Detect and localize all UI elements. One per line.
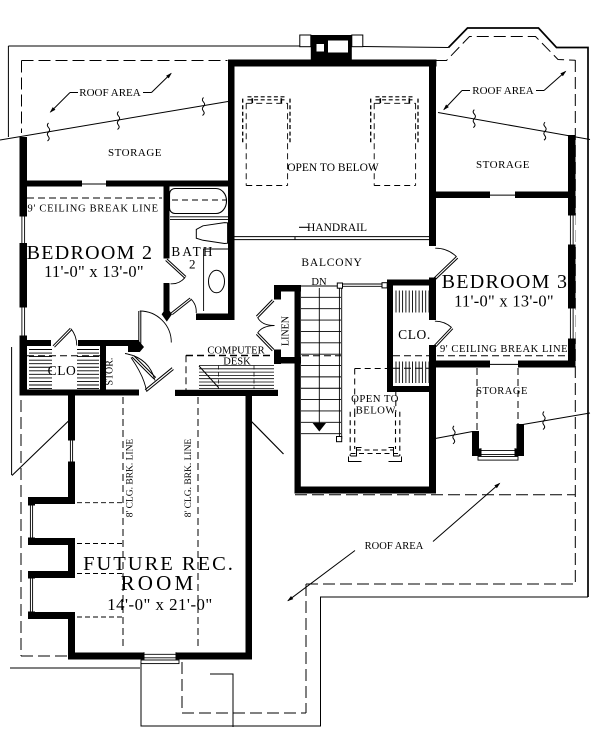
svg-text:STOR.: STOR. bbox=[105, 358, 116, 386]
svg-text:11'-0" x 13'-0": 11'-0" x 13'-0" bbox=[454, 292, 554, 311]
svg-text:STORAGE: STORAGE bbox=[108, 147, 162, 159]
svg-text:ROOF AREA: ROOF AREA bbox=[79, 87, 140, 99]
svg-text:CLO.: CLO. bbox=[398, 327, 431, 342]
svg-text:OPEN TO: OPEN TO bbox=[351, 393, 399, 405]
svg-text:CLO.: CLO. bbox=[48, 363, 81, 378]
svg-text:9' CEILING BREAK LINE: 9' CEILING BREAK LINE bbox=[28, 204, 159, 215]
svg-text:BALCONY: BALCONY bbox=[301, 257, 362, 269]
svg-text:ROOF AREA: ROOF AREA bbox=[472, 85, 533, 97]
svg-text:11'-0" x 13'-0": 11'-0" x 13'-0" bbox=[44, 262, 144, 281]
svg-text:BEDROOM 3: BEDROOM 3 bbox=[442, 271, 569, 293]
svg-text:14'-0" x 21'-0": 14'-0" x 21'-0" bbox=[107, 595, 213, 614]
svg-text:BELOW: BELOW bbox=[356, 405, 397, 417]
svg-text:COMPUTER: COMPUTER bbox=[207, 346, 264, 357]
svg-text:STORAGE: STORAGE bbox=[476, 159, 530, 171]
svg-text:LINEN: LINEN bbox=[281, 316, 292, 346]
svg-text:OPEN TO BELOW: OPEN TO BELOW bbox=[287, 162, 379, 174]
svg-text:BEDROOM 2: BEDROOM 2 bbox=[27, 242, 154, 264]
svg-text:DN: DN bbox=[311, 277, 327, 288]
svg-text:8' CLG. BRK. LINE: 8' CLG. BRK. LINE bbox=[184, 439, 194, 518]
svg-text:HANDRAIL: HANDRAIL bbox=[307, 222, 367, 234]
svg-text:8' CLG. BRK. LINE: 8' CLG. BRK. LINE bbox=[126, 439, 136, 518]
svg-text:DESK: DESK bbox=[223, 357, 251, 368]
svg-text:ROOF AREA: ROOF AREA bbox=[365, 541, 424, 552]
svg-text:2: 2 bbox=[189, 257, 196, 272]
svg-text:9' CEILING BREAK LINE: 9' CEILING BREAK LINE bbox=[440, 344, 568, 355]
svg-text:STORAGE: STORAGE bbox=[476, 386, 528, 397]
svg-text:ROOM: ROOM bbox=[121, 571, 197, 595]
